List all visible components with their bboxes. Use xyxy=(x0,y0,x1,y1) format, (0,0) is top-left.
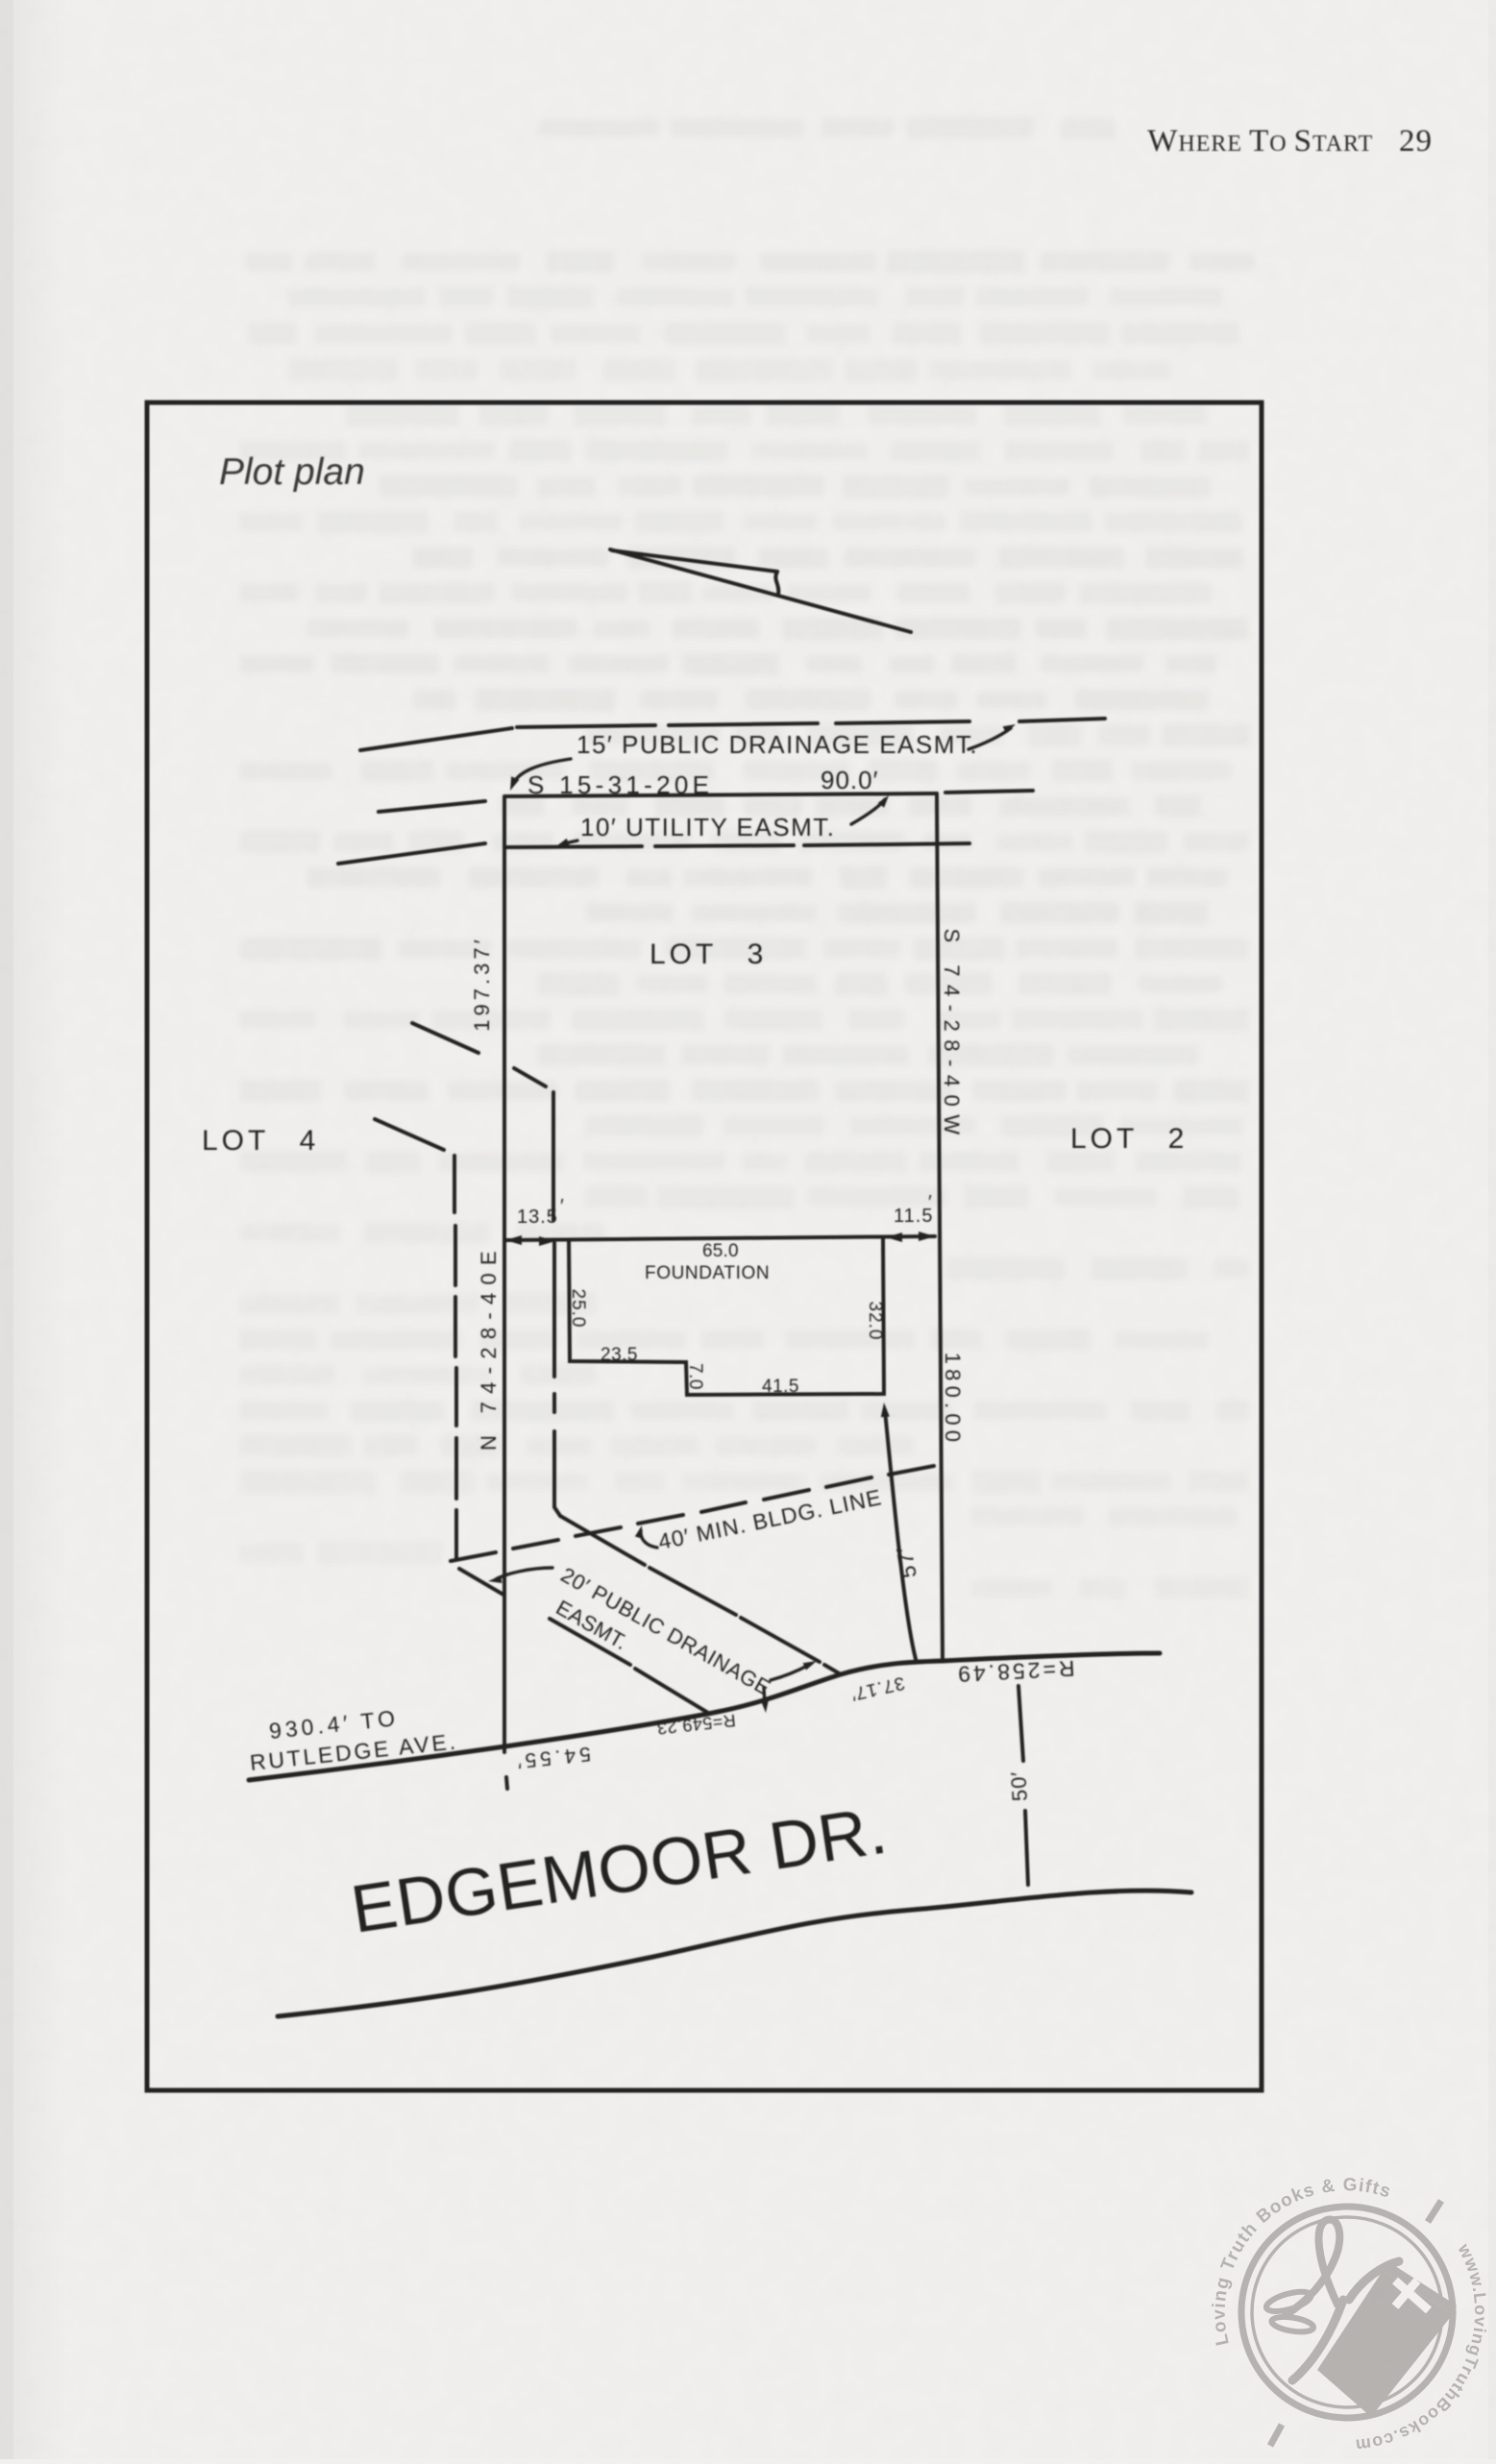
svg-text:180.00: 180.00 xyxy=(941,1353,965,1448)
svg-text:50′: 50′ xyxy=(1006,1770,1032,1802)
svg-text:90.0′: 90.0′ xyxy=(821,766,878,794)
svg-text:′: ′ xyxy=(928,1192,932,1213)
svg-text:25.0: 25.0 xyxy=(568,1289,588,1329)
svg-text:32.0: 32.0 xyxy=(865,1302,885,1341)
svg-text:FOUNDATION: FOUNDATION xyxy=(645,1263,770,1283)
svg-text:13.5: 13.5 xyxy=(517,1207,558,1228)
svg-text:N 74-28-40E: N 74-28-40E xyxy=(477,1243,501,1451)
svg-text:LOT 3: LOT 3 xyxy=(650,939,767,970)
svg-text:Plot plan: Plot plan xyxy=(219,451,365,493)
svg-text:7.0: 7.0 xyxy=(685,1363,705,1390)
svg-text:LOT 4: LOT 4 xyxy=(202,1125,319,1157)
svg-text:65.0: 65.0 xyxy=(702,1241,739,1261)
svg-text:197.37′: 197.37′ xyxy=(470,936,494,1031)
svg-text:23.5: 23.5 xyxy=(601,1345,638,1365)
svg-text:10′ UTILITY EASMT.: 10′ UTILITY EASMT. xyxy=(580,813,835,842)
svg-text:LOT 2: LOT 2 xyxy=(1070,1123,1188,1155)
svg-text:′: ′ xyxy=(560,1196,564,1217)
svg-text:S 74-28-40W: S 74-28-40W xyxy=(940,928,964,1142)
svg-text:41.5: 41.5 xyxy=(762,1377,799,1397)
svg-text:15′ PUBLIC DRAINAGE EASMT.: 15′ PUBLIC DRAINAGE EASMT. xyxy=(576,730,978,759)
